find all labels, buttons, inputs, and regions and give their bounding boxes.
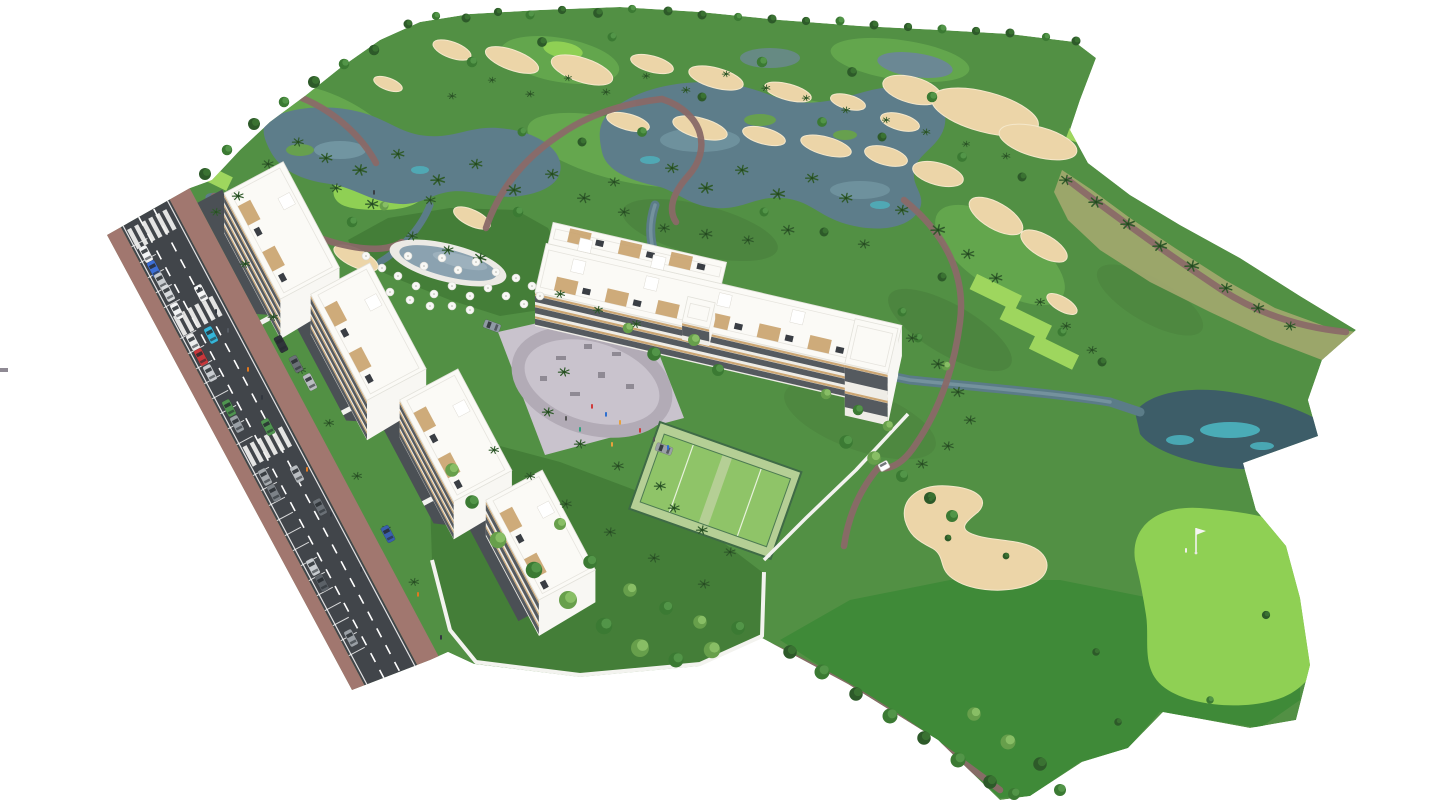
tree bbox=[1018, 173, 1027, 182]
tree bbox=[927, 92, 938, 103]
tree bbox=[1001, 735, 1016, 750]
parasol bbox=[472, 258, 480, 266]
tree bbox=[951, 753, 966, 768]
parasol bbox=[426, 302, 434, 310]
tree bbox=[404, 20, 413, 29]
person bbox=[360, 567, 362, 572]
tree bbox=[1054, 784, 1066, 796]
tree bbox=[896, 470, 908, 482]
parasol bbox=[406, 296, 414, 304]
tree bbox=[870, 21, 879, 30]
tree bbox=[1003, 553, 1010, 560]
tree bbox=[914, 334, 923, 343]
tree bbox=[559, 591, 577, 609]
tree bbox=[712, 364, 724, 376]
tree bbox=[820, 228, 829, 237]
tree bbox=[839, 435, 853, 449]
tree bbox=[867, 451, 881, 465]
person bbox=[261, 395, 263, 400]
tree bbox=[596, 618, 613, 635]
tree bbox=[1042, 33, 1050, 41]
tree bbox=[380, 202, 389, 211]
tree bbox=[698, 93, 707, 102]
tree bbox=[1098, 358, 1107, 367]
tree bbox=[836, 17, 845, 26]
roof-bulkhead bbox=[577, 238, 593, 254]
tree bbox=[693, 615, 707, 629]
tree bbox=[1206, 696, 1214, 704]
tree bbox=[659, 601, 673, 615]
parasol bbox=[520, 300, 528, 308]
person bbox=[579, 427, 581, 432]
parasol bbox=[404, 252, 412, 260]
parasol bbox=[502, 292, 510, 300]
person bbox=[440, 635, 442, 640]
tree bbox=[883, 709, 898, 724]
tree bbox=[623, 583, 637, 597]
tree bbox=[704, 642, 721, 659]
parasol bbox=[512, 274, 520, 282]
tree bbox=[878, 133, 887, 142]
tree bbox=[1092, 648, 1100, 656]
tree bbox=[513, 207, 524, 218]
person bbox=[247, 367, 249, 372]
tree bbox=[927, 497, 933, 503]
tree bbox=[467, 57, 478, 68]
tree bbox=[783, 645, 797, 659]
parasol bbox=[378, 264, 386, 272]
person bbox=[215, 309, 217, 314]
parasol bbox=[430, 290, 438, 298]
parasol bbox=[484, 284, 492, 292]
tree bbox=[465, 495, 479, 509]
tree bbox=[802, 17, 810, 25]
tree bbox=[938, 273, 947, 282]
tree bbox=[526, 11, 535, 20]
parasol bbox=[536, 292, 544, 300]
tree bbox=[608, 33, 617, 42]
tree bbox=[647, 347, 661, 361]
parasol bbox=[448, 282, 456, 290]
person bbox=[619, 420, 621, 425]
person bbox=[417, 592, 419, 597]
parasol bbox=[386, 288, 394, 296]
parasol bbox=[438, 254, 446, 262]
tree bbox=[339, 59, 350, 70]
tree bbox=[558, 6, 566, 14]
person bbox=[611, 442, 613, 447]
person bbox=[667, 445, 669, 450]
person bbox=[198, 287, 200, 292]
tree bbox=[734, 13, 742, 21]
tree bbox=[1262, 611, 1270, 619]
tree bbox=[945, 535, 952, 542]
tree bbox=[1058, 328, 1067, 337]
tree bbox=[308, 76, 320, 88]
tree bbox=[432, 12, 440, 20]
person bbox=[591, 404, 593, 409]
person bbox=[639, 428, 641, 433]
tree bbox=[898, 308, 907, 317]
parasol bbox=[466, 306, 474, 314]
tree bbox=[904, 23, 912, 31]
person bbox=[373, 190, 375, 195]
tree bbox=[817, 117, 827, 127]
tree bbox=[593, 8, 603, 18]
scene-canvas bbox=[0, 0, 1440, 800]
tree bbox=[1072, 37, 1081, 46]
tree bbox=[631, 639, 649, 657]
parasol bbox=[448, 302, 456, 310]
tree bbox=[628, 5, 636, 13]
tree bbox=[821, 389, 832, 400]
roof-bulkhead bbox=[717, 293, 733, 309]
tree bbox=[578, 138, 587, 147]
tree bbox=[688, 334, 700, 346]
tree bbox=[957, 152, 967, 162]
tree bbox=[669, 653, 684, 668]
tree bbox=[946, 510, 958, 522]
parasol bbox=[492, 268, 500, 276]
tree bbox=[815, 665, 830, 680]
tree bbox=[279, 97, 290, 108]
parasol bbox=[362, 252, 370, 260]
tree bbox=[347, 217, 358, 228]
parasol bbox=[420, 262, 428, 270]
tree bbox=[847, 67, 857, 77]
tree bbox=[445, 463, 459, 477]
tree bbox=[768, 15, 777, 24]
parasol bbox=[528, 282, 536, 290]
roof-bulkhead bbox=[571, 259, 587, 275]
tree bbox=[1033, 757, 1047, 771]
roof-bulkhead bbox=[644, 276, 660, 292]
tree bbox=[1006, 29, 1015, 38]
tree bbox=[248, 118, 260, 130]
tree bbox=[967, 707, 981, 721]
tree bbox=[518, 128, 527, 137]
tree bbox=[1114, 718, 1122, 726]
tree bbox=[664, 7, 673, 16]
roof-bulkhead bbox=[651, 255, 667, 271]
parasol bbox=[394, 272, 402, 280]
tree bbox=[853, 405, 864, 416]
parasol bbox=[466, 292, 474, 300]
tree bbox=[537, 37, 547, 47]
tree bbox=[494, 8, 502, 16]
tree bbox=[222, 145, 233, 156]
person bbox=[227, 328, 229, 333]
person bbox=[565, 416, 567, 421]
person bbox=[605, 412, 607, 417]
tree bbox=[983, 775, 997, 789]
tree bbox=[637, 127, 647, 137]
tree bbox=[757, 57, 768, 68]
person bbox=[653, 437, 655, 442]
person bbox=[306, 467, 308, 472]
person bbox=[330, 512, 332, 517]
person bbox=[1185, 548, 1187, 553]
parasol bbox=[412, 282, 420, 290]
tree bbox=[883, 421, 894, 432]
tree bbox=[760, 208, 769, 217]
tree bbox=[938, 25, 947, 34]
tree bbox=[698, 11, 707, 20]
tree bbox=[554, 518, 566, 530]
parasol bbox=[454, 266, 462, 274]
tree bbox=[369, 45, 380, 56]
roof-bulkhead bbox=[790, 309, 806, 325]
tree bbox=[490, 532, 507, 549]
aerial-render-golf-resort bbox=[0, 0, 1440, 800]
tree bbox=[526, 562, 543, 579]
tree bbox=[583, 555, 597, 569]
tree bbox=[462, 14, 471, 23]
tree bbox=[849, 687, 863, 701]
tree bbox=[972, 27, 980, 35]
tree bbox=[731, 621, 745, 635]
tree bbox=[1008, 788, 1020, 800]
tree bbox=[199, 168, 211, 180]
tree bbox=[917, 731, 931, 745]
